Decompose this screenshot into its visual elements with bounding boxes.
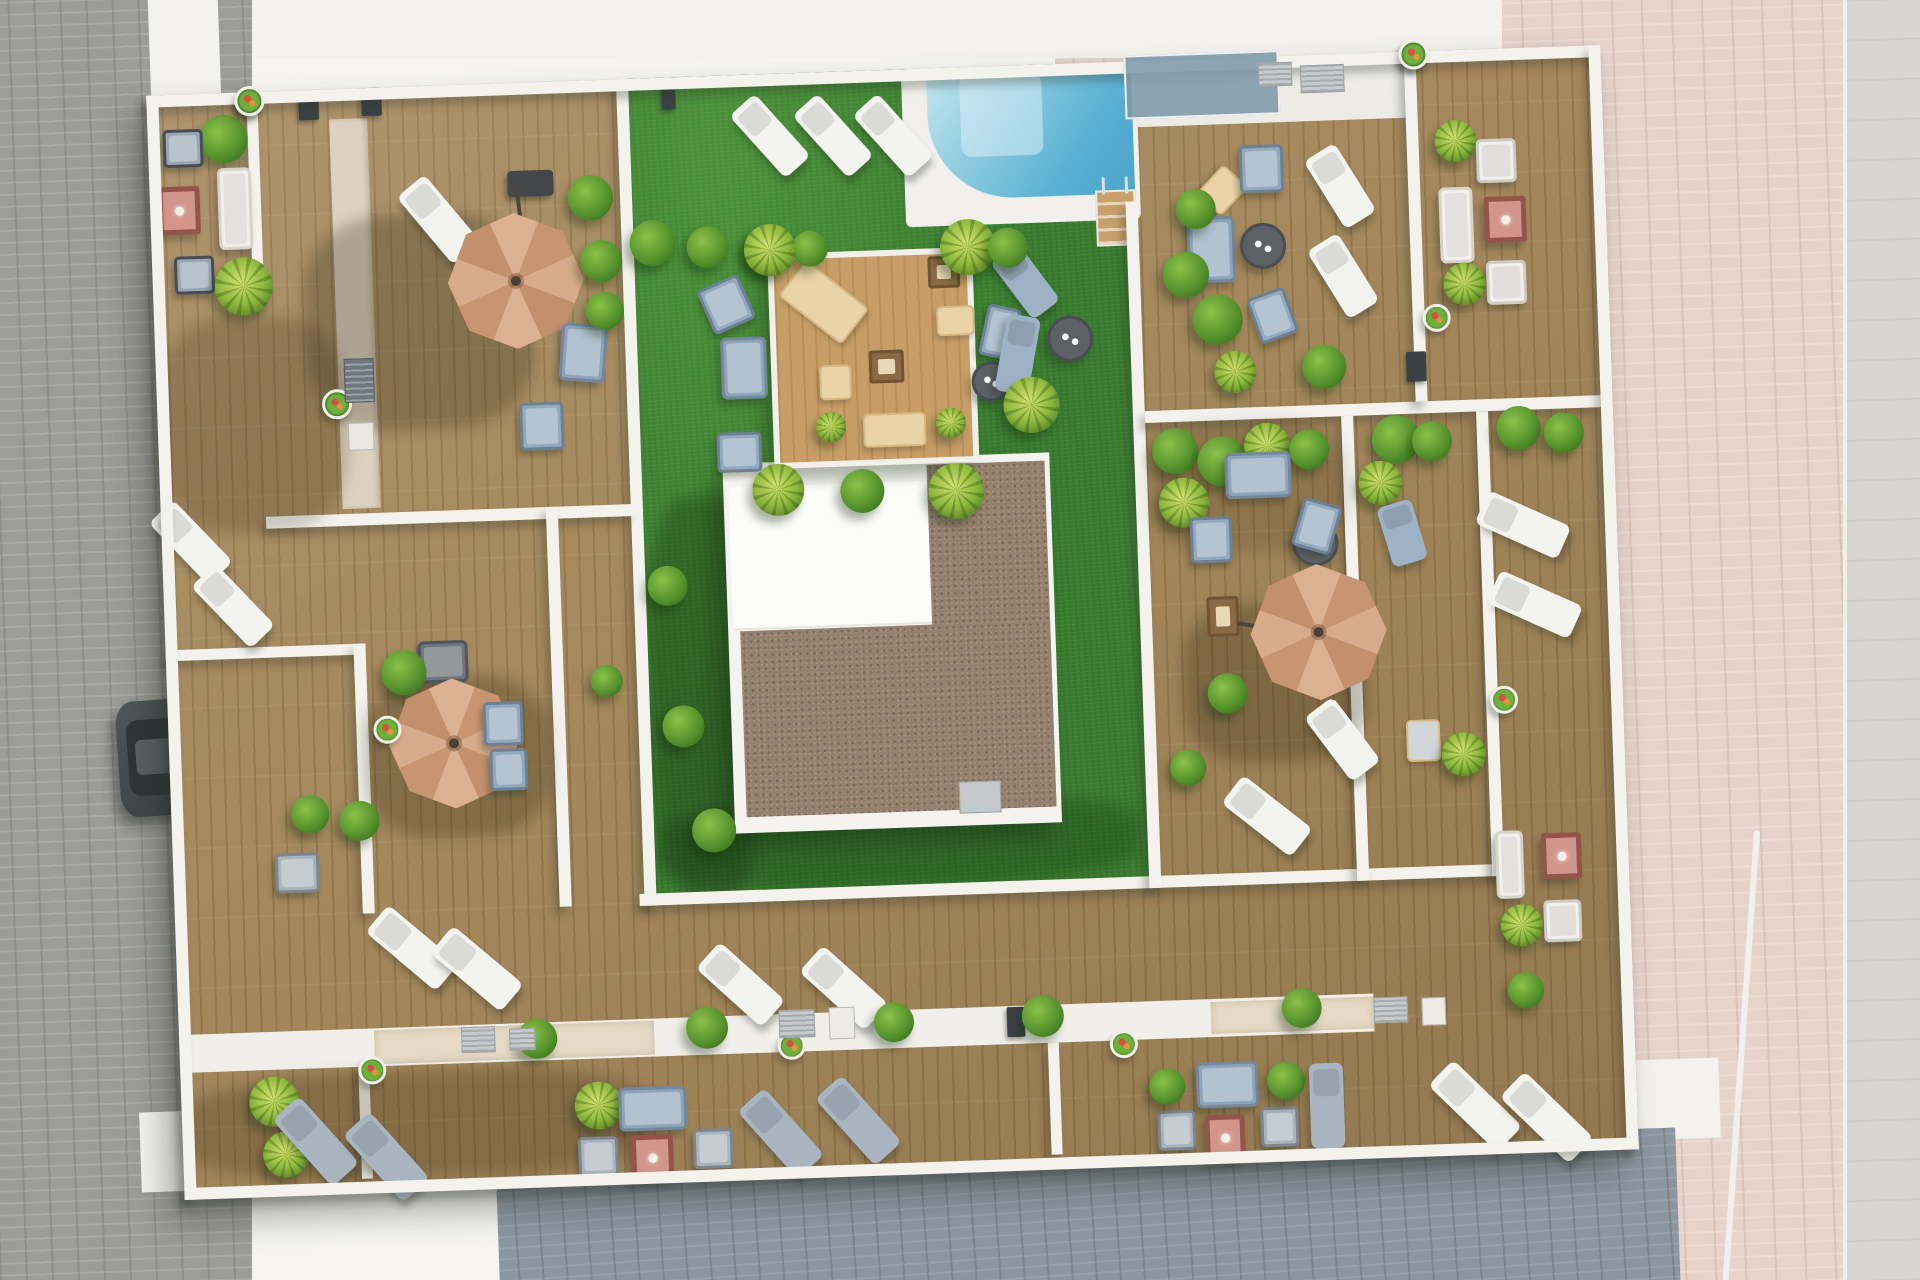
armchair-white bbox=[1486, 260, 1528, 305]
ac-unit bbox=[1258, 62, 1293, 87]
armchair bbox=[483, 701, 525, 746]
shrub bbox=[291, 795, 330, 834]
palm-plant bbox=[1434, 119, 1477, 162]
sun-lounger-gray bbox=[1309, 1063, 1346, 1149]
low-table bbox=[868, 349, 904, 383]
palm-plant bbox=[1214, 350, 1257, 393]
sun-lounger bbox=[1307, 233, 1380, 320]
sun-mat bbox=[936, 305, 975, 336]
scene bbox=[0, 0, 1920, 1280]
armchair bbox=[489, 748, 528, 791]
armchair-gray bbox=[275, 852, 320, 894]
sun-lounger-gray bbox=[737, 1088, 824, 1179]
flower-planter bbox=[1109, 1030, 1138, 1059]
ac-unit bbox=[1300, 64, 1345, 94]
armchair bbox=[519, 401, 565, 451]
shrub bbox=[1162, 251, 1210, 299]
shrub bbox=[585, 291, 624, 330]
sofa-white bbox=[217, 167, 254, 250]
flower-planter bbox=[1398, 39, 1429, 70]
armchair-gray bbox=[693, 1128, 734, 1169]
sidewalk bbox=[1843, 0, 1920, 1280]
sun-lounger bbox=[1221, 775, 1313, 858]
divider-wall bbox=[546, 507, 572, 907]
sofa bbox=[618, 1085, 687, 1131]
shrub bbox=[199, 114, 249, 164]
palm-plant bbox=[1441, 731, 1487, 777]
apartment-building-roof bbox=[146, 45, 1639, 1200]
ac-unit bbox=[1373, 996, 1408, 1023]
armchair-gray bbox=[1157, 1110, 1196, 1151]
shrub bbox=[579, 239, 622, 282]
ac-unit bbox=[778, 1009, 815, 1038]
shrub bbox=[1496, 405, 1542, 451]
shrub bbox=[1192, 294, 1244, 346]
shrub bbox=[1302, 344, 1348, 390]
sun-mat bbox=[863, 412, 927, 448]
sidewalk-band bbox=[252, 0, 1502, 58]
palm-plant bbox=[1358, 460, 1404, 506]
armchair-dark bbox=[162, 129, 203, 168]
utility-box bbox=[1406, 351, 1427, 382]
sofa bbox=[1224, 451, 1292, 499]
utility-door bbox=[828, 1007, 855, 1040]
sofa bbox=[1196, 1061, 1260, 1109]
divider-wall bbox=[1476, 411, 1504, 876]
sun-mat bbox=[819, 364, 852, 400]
armchair-gray bbox=[1260, 1106, 1299, 1147]
armchair-white bbox=[1475, 138, 1517, 183]
sink-unit bbox=[348, 422, 375, 451]
flower-planter bbox=[1490, 685, 1519, 714]
low-table bbox=[1206, 596, 1239, 637]
divider-wall bbox=[1048, 1042, 1063, 1154]
shrub bbox=[339, 800, 380, 841]
fire-table bbox=[1541, 832, 1583, 879]
gravel-roof bbox=[740, 621, 1056, 818]
shrub bbox=[1170, 749, 1207, 786]
shrub bbox=[1149, 1068, 1186, 1105]
shrub bbox=[567, 175, 614, 222]
flower-planter bbox=[234, 86, 265, 117]
sofa bbox=[720, 336, 768, 400]
sun-lounger-blue bbox=[1376, 498, 1429, 568]
armchair bbox=[716, 431, 762, 473]
palm-plant bbox=[214, 256, 274, 316]
shrub bbox=[1411, 420, 1452, 461]
bbq-grill bbox=[343, 358, 375, 403]
cast-shadow bbox=[154, 314, 351, 535]
sofa-white bbox=[1438, 187, 1475, 264]
divider-wall bbox=[1403, 51, 1427, 401]
palm-plant bbox=[1500, 903, 1543, 946]
sofa-white bbox=[1495, 830, 1525, 899]
armchair bbox=[1246, 286, 1300, 345]
coffee-table bbox=[1239, 222, 1287, 270]
flower-planter bbox=[1422, 303, 1451, 332]
armchair-dark bbox=[174, 255, 215, 294]
shrub bbox=[590, 664, 623, 697]
armchair bbox=[1239, 144, 1285, 194]
sun-lounger bbox=[1304, 143, 1377, 230]
armchair-gray bbox=[578, 1136, 619, 1177]
sun-lounger bbox=[1486, 570, 1583, 639]
utility-door bbox=[1421, 997, 1446, 1026]
armchair-white bbox=[1543, 899, 1582, 942]
glass-canopy bbox=[1123, 50, 1280, 119]
shrub bbox=[1508, 971, 1545, 1008]
shrub bbox=[1267, 1061, 1306, 1100]
sofa bbox=[558, 322, 608, 383]
ac-unit bbox=[509, 1028, 536, 1051]
fire-table bbox=[1484, 196, 1528, 243]
armchair bbox=[1190, 516, 1234, 563]
ac-unit bbox=[461, 1026, 496, 1053]
palm-plant bbox=[1443, 262, 1486, 305]
divider-wall bbox=[166, 644, 361, 662]
fire-table bbox=[157, 186, 201, 235]
roof-hatch bbox=[959, 780, 1002, 813]
sun-lounger bbox=[191, 563, 275, 648]
sun-lounger-gray bbox=[815, 1075, 902, 1166]
sun-mat bbox=[1406, 719, 1441, 762]
shrub bbox=[1543, 412, 1584, 453]
